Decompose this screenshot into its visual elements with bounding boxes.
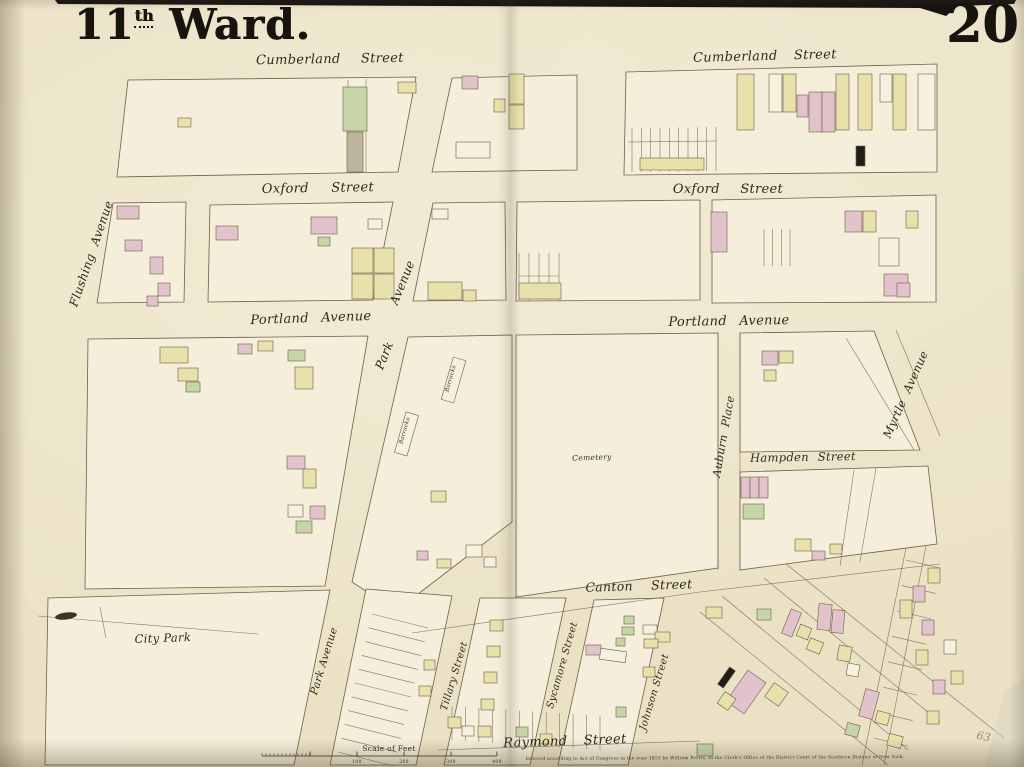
building [117, 206, 139, 219]
building [927, 711, 939, 724]
building [762, 351, 778, 365]
building [764, 370, 776, 381]
street-line [700, 564, 940, 592]
building [887, 733, 904, 748]
map-label-portland-avenue-right: Portland Avenue [667, 313, 789, 330]
building [586, 645, 601, 655]
building [737, 74, 754, 130]
map-label-cumberland-street-left: Cumberland Street [256, 51, 404, 69]
building [741, 477, 750, 498]
map-label-city-park: City Park [134, 630, 191, 646]
building [900, 600, 912, 618]
building [846, 663, 860, 677]
building [160, 347, 188, 363]
building [812, 551, 825, 560]
building [933, 680, 945, 694]
building [644, 639, 658, 648]
ward-title: 11th Ward. [74, 0, 311, 49]
building [125, 240, 142, 251]
building [368, 219, 382, 229]
building [783, 74, 796, 112]
building [352, 248, 373, 273]
building [897, 283, 910, 297]
building [318, 237, 330, 246]
plate-number: 20 [946, 0, 1018, 55]
building [640, 158, 704, 170]
city-blocks-layer [45, 64, 937, 765]
building [856, 146, 865, 166]
map-label-scale-of-feet: Scale of Feet [362, 744, 415, 753]
building [448, 717, 461, 728]
map-label-park-avenue-upper-word-park: Park [372, 339, 396, 372]
building [809, 92, 822, 132]
building [831, 610, 845, 634]
building [624, 616, 634, 624]
building [845, 723, 861, 738]
building [303, 469, 316, 488]
building [795, 539, 811, 551]
building [186, 382, 200, 392]
building [796, 624, 812, 640]
building [837, 645, 852, 662]
building [951, 671, 963, 684]
building [462, 76, 478, 89]
building [484, 672, 497, 683]
building [150, 257, 163, 274]
map-label-cemetery: Cemetery [572, 452, 612, 462]
map-label-canton-street: Canton Street [585, 576, 693, 595]
building [463, 290, 476, 301]
ward-word: Ward. [169, 0, 311, 49]
building [437, 559, 451, 568]
building [374, 248, 394, 273]
building [769, 74, 782, 112]
scale-tick-label: 200 [399, 759, 409, 765]
city-block [740, 466, 937, 570]
building [806, 638, 823, 654]
cemetery-block [516, 333, 718, 597]
lot-line [892, 636, 926, 644]
building [456, 142, 490, 158]
building [880, 74, 892, 102]
building [893, 74, 906, 130]
building [863, 211, 876, 232]
ward-number: 11 [74, 0, 134, 49]
building [295, 367, 313, 389]
building [616, 707, 626, 717]
building [622, 627, 634, 635]
building [922, 620, 934, 635]
building [310, 506, 325, 519]
building [431, 491, 446, 502]
building [845, 211, 862, 232]
street-line [862, 548, 906, 765]
building [428, 282, 462, 300]
building [419, 686, 431, 696]
building [836, 74, 849, 130]
city-block [432, 75, 577, 172]
building [750, 477, 759, 498]
building [347, 132, 363, 172]
building [830, 544, 842, 554]
building [906, 211, 918, 228]
map-label-pencil-mark: 63 [975, 729, 992, 745]
building [822, 92, 835, 132]
building [147, 296, 158, 306]
building [928, 568, 940, 583]
building [706, 607, 722, 618]
building [238, 344, 252, 354]
map-label-hampden-street: Hampden Street [749, 449, 856, 465]
building [417, 551, 428, 560]
corner-fold [985, 678, 1024, 767]
building [817, 603, 832, 630]
building [726, 670, 766, 714]
city-block [330, 589, 452, 765]
building [288, 505, 303, 517]
street-line [700, 612, 888, 765]
map-label-portland-avenue-left: Portland Avenue [249, 309, 372, 328]
lot-line [883, 687, 917, 695]
building [875, 711, 891, 726]
building [944, 640, 956, 654]
building [484, 557, 496, 567]
map-label-imprint: Entered according to Act of Congress in … [526, 755, 904, 762]
city-block [352, 335, 512, 611]
building [913, 586, 925, 602]
building [765, 683, 789, 707]
building [879, 238, 899, 266]
building [424, 660, 435, 670]
scale-tick-label: 300 [446, 759, 456, 765]
map-label-oxford-street-left: Oxford Street [262, 180, 375, 197]
map-sheet: 100200300400 Cumberland StreetCumberland… [0, 0, 1024, 767]
building [466, 545, 482, 557]
building [398, 82, 416, 93]
building [296, 521, 312, 533]
building [432, 209, 448, 219]
building [509, 74, 524, 104]
building [779, 351, 793, 363]
building [918, 74, 935, 130]
building [743, 504, 764, 519]
building [757, 609, 771, 620]
building [697, 744, 713, 756]
city-block [117, 77, 416, 177]
building [158, 283, 170, 296]
map-canvas: 100200300400 Cumberland StreetCumberland… [0, 0, 1024, 767]
building [216, 226, 238, 240]
city-park-block [45, 590, 330, 765]
building [287, 456, 305, 469]
scale-tick-label: 100 [352, 759, 362, 765]
building [718, 667, 736, 688]
building [487, 646, 500, 657]
building [343, 87, 367, 131]
building [858, 74, 872, 130]
building [478, 726, 491, 737]
scale-tick-label: 400 [492, 759, 502, 765]
building [859, 689, 880, 720]
building [509, 105, 524, 129]
building [178, 368, 198, 381]
building [494, 99, 505, 112]
building [462, 726, 474, 736]
map-label-cumberland-street-right: Cumberland Street [693, 47, 837, 66]
building [797, 95, 808, 117]
building [916, 650, 928, 665]
building [288, 350, 305, 361]
building [311, 217, 337, 234]
building [352, 274, 373, 299]
ward-suffix: th [134, 6, 153, 28]
building [481, 699, 494, 710]
building [711, 212, 727, 252]
building [616, 638, 625, 646]
building [519, 283, 561, 299]
building [490, 620, 503, 631]
building [759, 477, 768, 498]
building [178, 118, 191, 127]
map-label-oxford-street-right: Oxford Street [673, 182, 784, 197]
building [258, 341, 273, 351]
city-block [85, 336, 368, 589]
